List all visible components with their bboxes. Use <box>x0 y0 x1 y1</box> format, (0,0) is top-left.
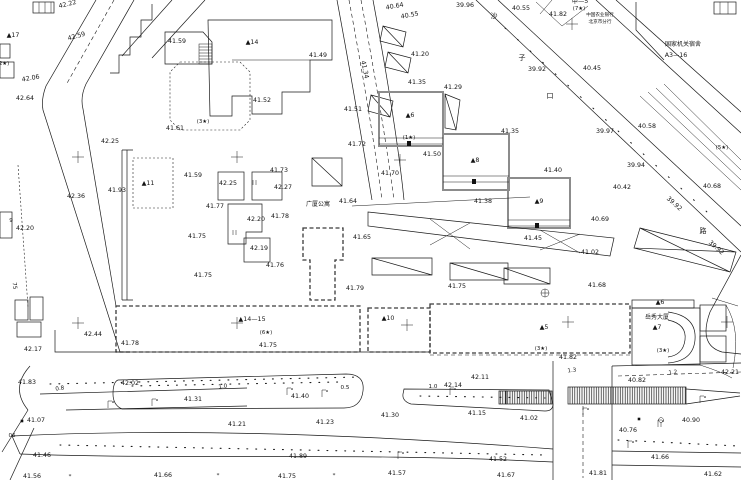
survey-drawing: 42.2242.5941.5942.0642.6441.6142.2541.52… <box>0 0 741 480</box>
elevation-label: 42.06 <box>21 74 40 84</box>
elevation-label: 41.76 <box>266 262 284 269</box>
elevation-label: 41.34 <box>359 60 370 79</box>
elevation-label: 41.02 <box>520 415 538 422</box>
survey-cross-icon <box>231 151 243 163</box>
survey-cross-icon <box>401 319 413 331</box>
street-lamp-icon <box>156 399 158 401</box>
street-lamp-icon <box>583 408 587 415</box>
building-code-label: ▲7 <box>653 324 662 331</box>
story-count-label: (5★) <box>716 145 728 151</box>
building-under-construction <box>303 228 343 300</box>
road-mark-label: 9 <box>9 218 13 224</box>
elevation-label: 40.55 <box>512 5 530 12</box>
street-lamp-icon <box>628 441 632 448</box>
elevation-label: 41.49 <box>309 52 327 59</box>
story-count-label: (3★) <box>657 348 669 354</box>
place-name-label: 北京市分行 <box>589 18 612 25</box>
elevation-label: 41.21 <box>228 421 246 428</box>
elevation-label: 41.38 <box>474 198 492 205</box>
road-mark-label: 06 <box>8 433 16 439</box>
elevation-label: 40.42 <box>613 184 631 191</box>
survey-cross-icon <box>72 317 84 329</box>
elevation-label: 41.61 <box>166 125 184 132</box>
elevation-label: 41.07 <box>27 417 45 424</box>
survey-cross-icon <box>562 316 574 328</box>
elevation-label: 41.75 <box>278 473 296 480</box>
elevation-label: 42.17 <box>24 346 42 353</box>
building-code-label: A3—16 <box>665 52 688 59</box>
elevation-label: 42.20 <box>16 225 34 232</box>
elevation-label: 41.35 <box>501 128 519 135</box>
street-name-char: 路 <box>700 226 707 235</box>
street-lamp-icon <box>632 441 634 443</box>
elevation-label: 41.77 <box>206 203 224 210</box>
elevation-label: 40.55 <box>400 11 419 21</box>
elevation-label: 41.66 <box>154 472 172 479</box>
elevation-label: 40.76 <box>619 427 637 434</box>
building-code-labels: ▲17▲14▲11▲6▲8▲9▲10▲14—15▲5▲6▲7甲—5A3—16 <box>7 0 688 331</box>
building-row-5 <box>430 304 630 353</box>
elevation-label: 40.45 <box>583 65 601 72</box>
elevation-label: 40.69 <box>591 216 609 223</box>
elevation-label: 41.64 <box>339 198 357 205</box>
building-code-label: ▲6 <box>406 112 415 119</box>
elevation-label: 41.82 <box>549 11 567 18</box>
elevation-label: 39.97 <box>596 128 614 135</box>
elevation-labels: 42.2242.5941.5942.0642.6441.6142.2541.52… <box>16 0 739 480</box>
street-lamp-icon <box>322 390 326 397</box>
elevation-label: 42.19 <box>250 245 268 252</box>
elevation-label: 41.73 <box>270 167 288 174</box>
elevation-label: 39.92 <box>707 239 725 256</box>
building-code-label: ▲9 <box>535 198 544 205</box>
elevation-label: 41.40 <box>291 393 309 400</box>
elevation-label: 41.57 <box>388 470 406 477</box>
place-name-label: 国家机关宿舍 <box>665 40 701 48</box>
elevation-label: 41.78 <box>271 213 289 220</box>
elevation-label: 40.58 <box>638 123 656 130</box>
road-mark-label: * <box>217 473 220 479</box>
street-lamp-icon <box>291 388 293 390</box>
building-code-label: ▲8 <box>471 157 480 164</box>
building-code-label: ▲6 <box>656 299 665 306</box>
site-plan-canvas: 42.2242.5941.5942.0642.6441.6142.2541.52… <box>0 0 741 480</box>
elevation-label: 42.25 <box>101 138 119 145</box>
elevation-label: 42.25 <box>219 180 237 187</box>
elevation-label: 41.75 <box>194 272 212 279</box>
elevation-label: 40.64 <box>385 2 404 12</box>
elevation-label: 41.02 <box>581 249 599 256</box>
control-point-icon <box>21 420 24 423</box>
elevation-label: 41.65 <box>353 234 371 241</box>
elevation-label: 41.29 <box>444 84 462 91</box>
survey-cross-icon <box>394 154 406 166</box>
elevation-label: 41.35 <box>408 79 426 86</box>
story-count-label: (6★) <box>260 330 272 336</box>
survey-cross-icon <box>566 18 578 30</box>
road-mark-label: 1.2 <box>668 370 677 377</box>
road-mark-label: * <box>69 474 72 480</box>
street-name-char: 沙 <box>491 12 498 20</box>
elevation-label: 41.68 <box>588 282 606 289</box>
story-count-label: (3★) <box>197 119 209 125</box>
survey-cross-icon <box>721 316 733 328</box>
stair-hatch <box>199 44 212 64</box>
elevation-label: 41.56 <box>23 473 41 480</box>
elevation-label: 39.92 <box>528 66 546 73</box>
building-code-label: ▲17 <box>7 32 20 39</box>
elevation-label: 41.52 <box>489 456 507 463</box>
elevation-label: 41.59 <box>168 38 186 45</box>
road-mark-label: 0.5 <box>341 385 350 391</box>
elevation-label: 41.83 <box>18 379 36 386</box>
story-count-label: (3★) <box>535 346 547 352</box>
place-name-label: 广厦公寓 <box>306 200 330 208</box>
elevation-label: 41.93 <box>108 187 126 194</box>
map-corner-icon <box>33 2 54 13</box>
building-code-label: ▲14—15 <box>238 316 265 323</box>
elevation-label: 41.75 <box>259 342 277 349</box>
elevation-label: 39.94 <box>627 162 645 169</box>
elevation-label: 41.67 <box>497 472 515 479</box>
building-7-tower <box>632 298 738 378</box>
elevation-label: 41.81 <box>589 470 607 477</box>
hatched-road-medians <box>499 387 740 404</box>
elevation-label: 41.51 <box>344 106 362 113</box>
elevation-label: 42.59 <box>67 31 86 43</box>
road-network <box>2 0 741 480</box>
elevation-label: 41.52 <box>253 97 271 104</box>
elevation-label: 41.20 <box>411 51 429 58</box>
place-name-label: 中国农业银行 <box>586 11 614 18</box>
culvert-hatches <box>368 26 411 117</box>
elevation-label: 41.46 <box>33 452 51 459</box>
road-mark-label: 1.3 <box>567 368 577 375</box>
elevation-label: 42.27 <box>274 184 292 191</box>
elevation-label: 41.31 <box>184 396 202 403</box>
elevation-label: 42.36 <box>67 193 85 200</box>
story-count-label: (7★) <box>573 6 585 12</box>
elevation-label: 41.89 <box>289 453 307 460</box>
elevation-label: 41.59 <box>184 172 202 179</box>
map-corner-icon <box>714 2 736 14</box>
story-count-label: (2★) <box>0 61 9 67</box>
building-row-14-15 <box>116 306 360 352</box>
elevation-label: 42.22 <box>58 0 77 10</box>
elevation-label: 42.11 <box>471 374 489 381</box>
elevation-label: 42.20 <box>247 216 265 223</box>
street-name-char: 子 <box>519 54 526 62</box>
elevation-label: 41.50 <box>423 151 441 158</box>
street-lamp-icon <box>587 408 589 410</box>
elevation-label: 41.15 <box>468 410 486 417</box>
road-mark-label: 1.0 <box>429 384 438 390</box>
survey-cross-icon <box>72 151 84 163</box>
elevation-label: 39.96 <box>456 2 474 9</box>
building-code-label: 甲—5 <box>572 0 589 5</box>
elevation-label: 41.72 <box>348 141 366 148</box>
elevation-label: 40.82 <box>628 377 646 384</box>
place-name-label: 岳秀大厦 <box>645 313 669 321</box>
elevation-label: 41.23 <box>316 419 334 426</box>
elevation-label: 39.92 <box>665 195 683 212</box>
elevation-label: 41.30 <box>381 412 399 419</box>
elevation-label: 41.82 <box>559 354 577 361</box>
road-mark-label: * <box>333 473 336 479</box>
elevation-label: 41.62 <box>704 471 722 478</box>
elevation-label: 41.79 <box>346 285 364 292</box>
story-count-label: (1★) <box>403 135 415 141</box>
elevation-label: 41.78 <box>121 340 139 347</box>
road-dimension-marks: 0.81.00.51.01.31.275069*** <box>8 218 677 480</box>
elevation-label: 41.75 <box>448 283 466 290</box>
road-mark-label: 1.0 <box>218 383 228 390</box>
story-note-labels: (2★)(3★)(1★)(7★)(5★)(6★)(3★)(3★) <box>0 6 728 354</box>
elevation-label: 41.66 <box>651 454 669 461</box>
street-lamp-icon <box>398 452 402 459</box>
street-name-char: 口 <box>547 92 554 100</box>
street-lamp-icon <box>152 399 156 406</box>
road-mark-label: 0.8 <box>55 385 65 392</box>
street-lamp-icon <box>326 390 328 392</box>
elevation-label: 42.64 <box>16 95 34 102</box>
traffic-island <box>113 374 363 409</box>
elevation-label: 42.44 <box>84 331 102 338</box>
elevation-label: 40.68 <box>703 183 721 190</box>
elevation-label: 42.21 <box>721 369 739 376</box>
elevation-label: 41.75 <box>188 233 206 240</box>
elevation-label: 42.02 <box>121 380 139 387</box>
road-mark-label: 75 <box>11 282 18 290</box>
street-lamp-icon <box>402 452 404 454</box>
street-lamp-icon <box>704 396 706 398</box>
street-lamp-icon <box>108 401 112 408</box>
control-point-icon <box>638 418 641 421</box>
building-code-label: ▲10 <box>382 315 395 322</box>
elevation-label: 40.90 <box>682 417 700 424</box>
elevation-label: 41.70 <box>381 170 399 177</box>
building-code-label: ▲14 <box>246 39 259 46</box>
street-lamp-icon <box>454 388 456 390</box>
elevation-label: 41.40 <box>544 167 562 174</box>
street-lamp-icon <box>112 401 114 403</box>
building-code-label: ▲11 <box>142 180 155 187</box>
elevation-label: 41.45 <box>524 235 542 242</box>
building-row-10 <box>368 308 430 352</box>
building-code-label: ▲5 <box>540 324 549 331</box>
stepped-wall <box>110 4 152 73</box>
